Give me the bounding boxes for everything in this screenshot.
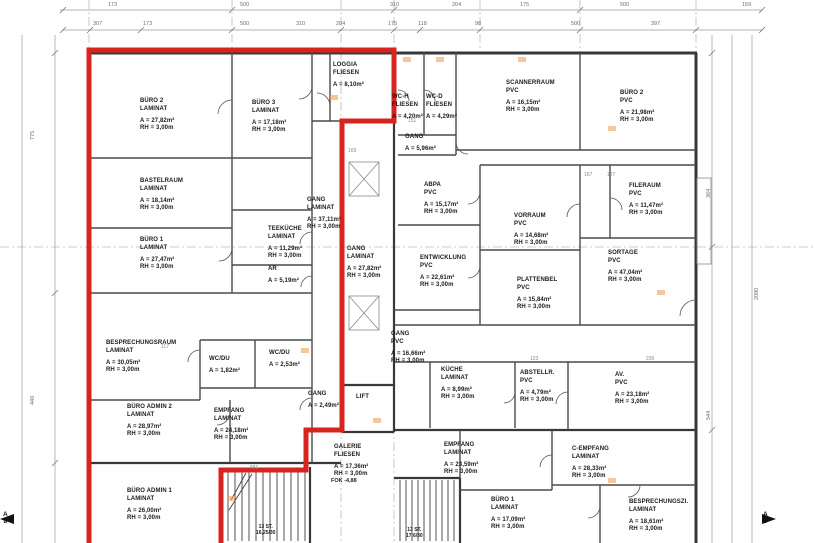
room-area: A = 5,96m² — [405, 146, 436, 154]
room-area: A = 27,82m² — [347, 266, 381, 274]
room-material: LAMINAT — [491, 505, 525, 513]
room-height: RH = 3,00m — [629, 526, 688, 534]
room-area: A = 30,05m² — [106, 360, 176, 368]
room-material: PVC — [506, 88, 555, 96]
room-area: A = 18,61m² — [629, 519, 688, 527]
room-area: A = 27,82m² — [140, 118, 174, 126]
room-name: BÜRO 2 — [620, 90, 654, 98]
section-marker-number: 8 — [3, 518, 8, 525]
room-name: BESPRECHUNGSZI. — [629, 499, 688, 507]
section-marker-letter: A — [3, 511, 8, 518]
room-area: A = 18,14m² — [140, 198, 183, 206]
dimension-text: 310 — [296, 21, 305, 27]
dimension-text: 310 — [390, 2, 399, 8]
dimension-text: 173 — [143, 21, 152, 27]
room-material: LAMINAT — [572, 454, 609, 462]
room-area: A = 1,82m² — [209, 368, 240, 376]
room-area: A = 17,36m² — [334, 464, 368, 472]
room-label: LIFT — [356, 394, 369, 402]
room-height: RH = 3,00m — [214, 435, 248, 443]
room-area: A = 28,33m² — [572, 466, 609, 474]
room-material: FLIESEN — [333, 70, 364, 78]
room-name: BÜRO 3 — [252, 100, 286, 108]
room-name: GANG — [347, 246, 381, 254]
dimension-text: 500 — [240, 2, 249, 8]
room-material: LAMINAT — [347, 254, 381, 262]
room-area: A = 27,47m² — [140, 257, 174, 265]
room-label: SORTAGE PVC A = 47,04m² RH = 3,00m — [608, 250, 642, 285]
room-height: RH = 3,00m — [444, 469, 478, 477]
room-name: TEEKÜCHE — [268, 226, 302, 234]
stair-label: 13 ST.17,6/30 — [406, 527, 423, 540]
wall-dimension-text: 123 — [530, 356, 538, 362]
room-name: EMPFANG — [444, 442, 478, 450]
room-label: BÜRO ADMIN 1 LAMINAT A = 26,00m² RH = 3,… — [127, 488, 172, 523]
room-height: RH = 3,00m — [347, 273, 381, 281]
room-label: BÜRO ADMIN 2 LAMINAT A = 28,97m² RH = 3,… — [127, 404, 172, 439]
room-label: GANG A = 2,49m² — [308, 391, 339, 411]
room-material: PVC — [391, 339, 425, 347]
dimension-text: 175 — [520, 2, 529, 8]
wall-dimension-text: 169 — [348, 148, 356, 154]
room-label: EMPFANG LAMINAT A = 23,59m² RH = 3,00m — [444, 442, 478, 477]
room-material: LAMINAT — [140, 186, 183, 194]
room-name: GANG — [307, 197, 341, 205]
room-height: RH = 3,00m — [620, 117, 654, 125]
room-label: BÜRO 2 PVC A = 21,98m² RH = 3,00m — [620, 90, 654, 125]
room-material: PVC — [615, 380, 649, 388]
room-area: A = 8,10m² — [333, 82, 364, 90]
floorplan-drawing — [0, 0, 814, 543]
room-area: A = 16,15m² — [506, 100, 555, 108]
room-label: AV. PVC A = 23,18m² RH = 3,00m — [615, 372, 649, 407]
orange-marker — [227, 496, 235, 501]
room-name: BÜRO 1 — [140, 237, 174, 245]
room-height: RH = 3,00m — [268, 253, 302, 261]
room-label: LOGGIA FLIESEN A = 8,10m² — [333, 62, 364, 89]
dimension-text: 307 — [93, 21, 102, 27]
room-area: A = 22,61m² — [420, 275, 466, 283]
room-label: WC/DU A = 1,82m² — [209, 356, 240, 376]
axis-grid-lines — [0, 0, 814, 543]
room-area: A = 2,49m² — [308, 403, 339, 411]
room-name: LOGGIA — [333, 62, 364, 70]
room-label: C-EMPFANG LAMINAT A = 28,33m² RH = 3,00m — [572, 446, 609, 481]
room-name: GANG — [308, 391, 339, 399]
room-area: A = 28,97m² — [127, 424, 172, 432]
orange-marker — [436, 57, 444, 62]
room-name: FILERAUM — [629, 183, 663, 191]
stair-label: 13 ST.16,25/30 — [256, 524, 275, 537]
room-material: PVC — [629, 191, 663, 199]
room-name: ABSTELLR. — [520, 370, 555, 378]
room-name: WC/DU — [209, 356, 240, 364]
room-label: GALERIE FLIESEN A = 17,36m² RH = 3,00m — [334, 444, 368, 479]
dimension-text: 500 — [571, 21, 580, 27]
dimension-text: 175 — [388, 21, 397, 27]
dimension-text: 775 — [30, 131, 36, 140]
room-label: ABSTELLR. PVC A = 4,79m² RH = 3,00m — [520, 370, 555, 405]
room-material: LAMINAT — [140, 245, 174, 253]
room-name: GALERIE — [334, 444, 368, 452]
room-label: AR A = 5,19m² — [268, 266, 299, 286]
dimension-text: 118 — [418, 21, 427, 27]
room-name: AV. — [615, 372, 649, 380]
room-name: PLATTENBEL — [517, 277, 557, 285]
wall-dimension-text: 167 — [584, 172, 592, 178]
room-label: GANG PVC A = 16,66m² RH = 3,00m — [391, 331, 425, 366]
room-material: PVC — [608, 258, 642, 266]
room-material: LAMINAT — [127, 496, 172, 504]
room-label: BASTELRAUM LAMINAT A = 18,14m² RH = 3,00… — [140, 178, 183, 213]
room-name: WC-H — [392, 94, 423, 102]
room-material: PVC — [517, 285, 557, 293]
room-area: A = 11,29m² — [268, 246, 302, 254]
dimension-text: 173 — [108, 2, 117, 8]
room-label: ENTWICKLUNG PVC A = 22,61m² RH = 3,00m — [420, 255, 466, 290]
room-height: RH = 3,00m — [140, 205, 183, 213]
room-material: LAMINAT — [214, 416, 248, 424]
dimension-text: 159 — [742, 2, 751, 8]
orange-marker — [518, 57, 526, 62]
room-area: A = 26,00m² — [127, 508, 172, 516]
room-name: EMPFANG — [214, 408, 248, 416]
room-name: ABPA — [424, 182, 458, 190]
room-label: TEEKÜCHE LAMINAT A = 11,29m² RH = 3,00m — [268, 226, 302, 261]
room-height: RH = 3,00m — [520, 397, 555, 405]
dimension-text: 500 — [620, 2, 629, 8]
orange-marker — [608, 126, 616, 131]
room-area: A = 2,53m² — [269, 362, 300, 370]
room-area: A = 15,17m² — [424, 202, 458, 210]
room-height: RH = 3,00m — [420, 282, 466, 290]
room-name: AR — [268, 266, 299, 274]
orange-marker — [608, 478, 616, 483]
room-material: LAMINAT — [127, 412, 172, 420]
room-name: SORTAGE — [608, 250, 642, 258]
room-name: BÜRO ADMIN 1 — [127, 488, 172, 496]
room-label: WC-D FLIESEN A = 4,29m² — [426, 94, 457, 121]
room-area: A = 4,79m² — [520, 390, 555, 398]
room-height: RH = 3,00m — [608, 277, 642, 285]
room-label: GANG LAMINAT A = 37,11m² RH = 3,00m — [307, 197, 341, 232]
room-height: RH = 3,00m — [140, 125, 174, 133]
room-height: RH = 3,00m — [106, 367, 176, 375]
wall-dimension-text: 151 — [408, 118, 416, 124]
dimension-text: 98 — [475, 21, 481, 27]
room-height: RH = 3,00m — [307, 224, 341, 232]
room-name: WC-D — [426, 94, 457, 102]
room-material: FLIESEN — [334, 452, 368, 460]
dimension-text: 204 — [452, 2, 461, 8]
room-area: A = 37,11m² — [307, 217, 341, 225]
section-marker-left: A 8 — [3, 511, 8, 526]
room-area: A = 15,84m² — [517, 297, 557, 305]
room-area: A = 14,68m² — [514, 233, 548, 241]
room-label: SCANNERRAUM PVC A = 16,15m² RH = 3,00m — [506, 80, 555, 115]
floor-level-note: FOK -4,88 — [331, 478, 357, 484]
room-height: RH = 3,00m — [572, 473, 609, 481]
room-area: A = 16,66m² — [391, 351, 425, 359]
room-material: LAMINAT — [252, 108, 286, 116]
room-label: FILERAUM PVC A = 11,47m² RH = 3,00m — [629, 183, 663, 218]
room-height: RH = 3,00m — [391, 358, 425, 366]
room-height: RH = 3,00m — [514, 240, 548, 248]
room-name: WC/DU — [269, 350, 300, 358]
room-area: A = 23,59m² — [444, 462, 478, 470]
room-label: GANG LAMINAT A = 27,82m² RH = 3,00m — [347, 246, 381, 281]
room-material: LAMINAT — [441, 375, 475, 383]
room-label: WC/DU A = 2,53m² — [269, 350, 300, 370]
room-area: A = 17,09m² — [491, 517, 525, 525]
room-height: RH = 3,00m — [424, 209, 458, 217]
room-label: KÜCHE LAMINAT A = 8,99m² RH = 3,00m — [441, 367, 475, 402]
wall-dimension-text: 230 — [646, 356, 654, 362]
room-height: RH = 3,00m — [127, 431, 172, 439]
dimension-text: 204 — [336, 21, 345, 27]
room-name: BÜRO 2 — [140, 98, 174, 106]
room-area: A = 23,18m² — [615, 392, 649, 400]
room-area: A = 8,99m² — [441, 387, 475, 395]
wall-dimension-text: 117 — [161, 344, 169, 350]
room-name: LIFT — [356, 394, 369, 402]
room-material: LAMINAT — [268, 234, 302, 242]
room-label: BÜRO 1 LAMINAT A = 17,09m² RH = 3,00m — [491, 497, 525, 532]
room-name: BASTELRAUM — [140, 178, 183, 186]
room-area: A = 5,19m² — [268, 278, 299, 286]
floorplan-canvas: BÜRO 2 LAMINAT A = 27,82m² RH = 3,00m BÜ… — [0, 0, 814, 543]
door-arcs — [188, 86, 696, 518]
room-material: LAMINAT — [307, 205, 341, 213]
room-height: RH = 3,00m — [441, 394, 475, 402]
room-material: FLIESEN — [392, 102, 423, 110]
room-label: PLATTENBEL PVC A = 15,84m² RH = 3,00m — [517, 277, 557, 312]
room-label: VORRAUM PVC A = 14,68m² RH = 3,00m — [514, 213, 548, 248]
orange-marker — [373, 418, 381, 423]
dimension-text: 544 — [706, 411, 712, 420]
room-height: RH = 3,00m — [615, 399, 649, 407]
room-height: RH = 3,00m — [140, 264, 174, 272]
room-material: FLIESEN — [426, 102, 457, 110]
room-height: RH = 3,00m — [491, 524, 525, 532]
dimension-text: 440 — [30, 396, 36, 405]
orange-marker — [330, 95, 338, 100]
room-area: A = 21,98m² — [620, 110, 654, 118]
room-height: RH = 3,00m — [629, 210, 663, 218]
room-label: EMPFANG LAMINAT A = 24,18m² RH = 3,00m — [214, 408, 248, 443]
room-height: RH = 3,00m — [506, 107, 555, 115]
room-label: BÜRO 3 LAMINAT A = 17,18m² RH = 3,00m — [252, 100, 286, 135]
dimension-text: 2080 — [754, 288, 760, 300]
room-area: A = 47,04m² — [608, 270, 642, 278]
dimension-text: 397 — [651, 21, 660, 27]
room-material: PVC — [514, 221, 548, 229]
section-marker-right: A 8 — [763, 511, 768, 526]
room-label: BÜRO 2 LAMINAT A = 27,82m² RH = 3,00m — [140, 98, 174, 133]
room-material: LAMINAT — [140, 106, 174, 114]
room-height: RH = 3,00m — [252, 127, 286, 135]
wall-dimension-text: 127 — [607, 172, 615, 178]
orange-marker — [657, 290, 665, 295]
room-name: GANG — [391, 331, 425, 339]
room-height: RH = 3,00m — [127, 515, 172, 523]
room-material: LAMINAT — [444, 450, 478, 458]
room-material: PVC — [520, 378, 555, 386]
section-marker-number: 8 — [763, 518, 768, 525]
room-label: BESPRECHUNGSZI. LAMINAT A = 18,61m² RH =… — [629, 499, 688, 534]
room-name: VORRAUM — [514, 213, 548, 221]
room-label: ABPA PVC A = 15,17m² RH = 3,00m — [424, 182, 458, 217]
room-label: BÜRO 1 LAMINAT A = 27,47m² RH = 3,00m — [140, 237, 174, 272]
room-area: A = 24,18m² — [214, 428, 248, 436]
section-marker-letter: A — [763, 511, 768, 518]
room-label: GANG A = 5,96m² — [405, 134, 436, 154]
orange-marker — [403, 57, 411, 62]
room-name: BÜRO 1 — [491, 497, 525, 505]
dimension-text: 500 — [240, 21, 249, 27]
room-area: A = 4,29m² — [426, 114, 457, 122]
room-material: LAMINAT — [629, 507, 688, 515]
dimension-text: 364 — [706, 189, 712, 198]
room-material: PVC — [424, 190, 458, 198]
room-material: PVC — [420, 263, 466, 271]
room-name: BÜRO ADMIN 2 — [127, 404, 172, 412]
room-name: KÜCHE — [441, 367, 475, 375]
room-name: ENTWICKLUNG — [420, 255, 466, 263]
orange-marker — [301, 348, 309, 353]
room-area: A = 17,18m² — [252, 120, 286, 128]
wall-dimension-text: 581 — [250, 465, 258, 471]
room-area: A = 11,47m² — [629, 203, 663, 211]
room-name: SCANNERRAUM — [506, 80, 555, 88]
room-name: C-EMPFANG — [572, 446, 609, 454]
room-material: PVC — [620, 98, 654, 106]
room-name: GANG — [405, 134, 436, 142]
room-height: RH = 3,00m — [517, 304, 557, 312]
